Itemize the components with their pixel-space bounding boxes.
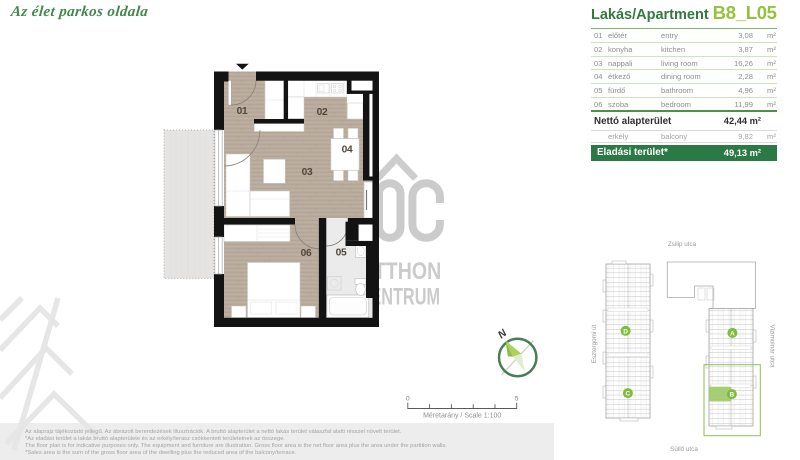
- svg-text:C: C: [626, 391, 631, 398]
- svg-text:B: B: [730, 392, 735, 399]
- svg-text:0: 0: [406, 395, 410, 402]
- svg-text:Zsilip utca: Zsilip utca: [668, 241, 697, 248]
- svg-text:06: 06: [301, 248, 312, 259]
- svg-text:5: 5: [515, 395, 519, 402]
- svg-text:Vizimolnár utca: Vizimolnár utca: [769, 325, 776, 368]
- svg-text:Méretarány / Scale 1:100: Méretarány / Scale 1:100: [423, 413, 501, 420]
- svg-text:D: D: [623, 328, 628, 335]
- svg-text:A: A: [730, 330, 735, 337]
- svg-text:Süllő utca: Süllő utca: [670, 446, 698, 453]
- svg-text:04: 04: [342, 145, 353, 156]
- svg-text:02: 02: [317, 107, 328, 118]
- svg-text:01: 01: [237, 106, 248, 117]
- svg-text:N: N: [496, 327, 510, 341]
- svg-text:05: 05: [336, 248, 347, 259]
- svg-text:Esztergomi út: Esztergomi út: [591, 325, 598, 364]
- svg-text:03: 03: [302, 167, 313, 178]
